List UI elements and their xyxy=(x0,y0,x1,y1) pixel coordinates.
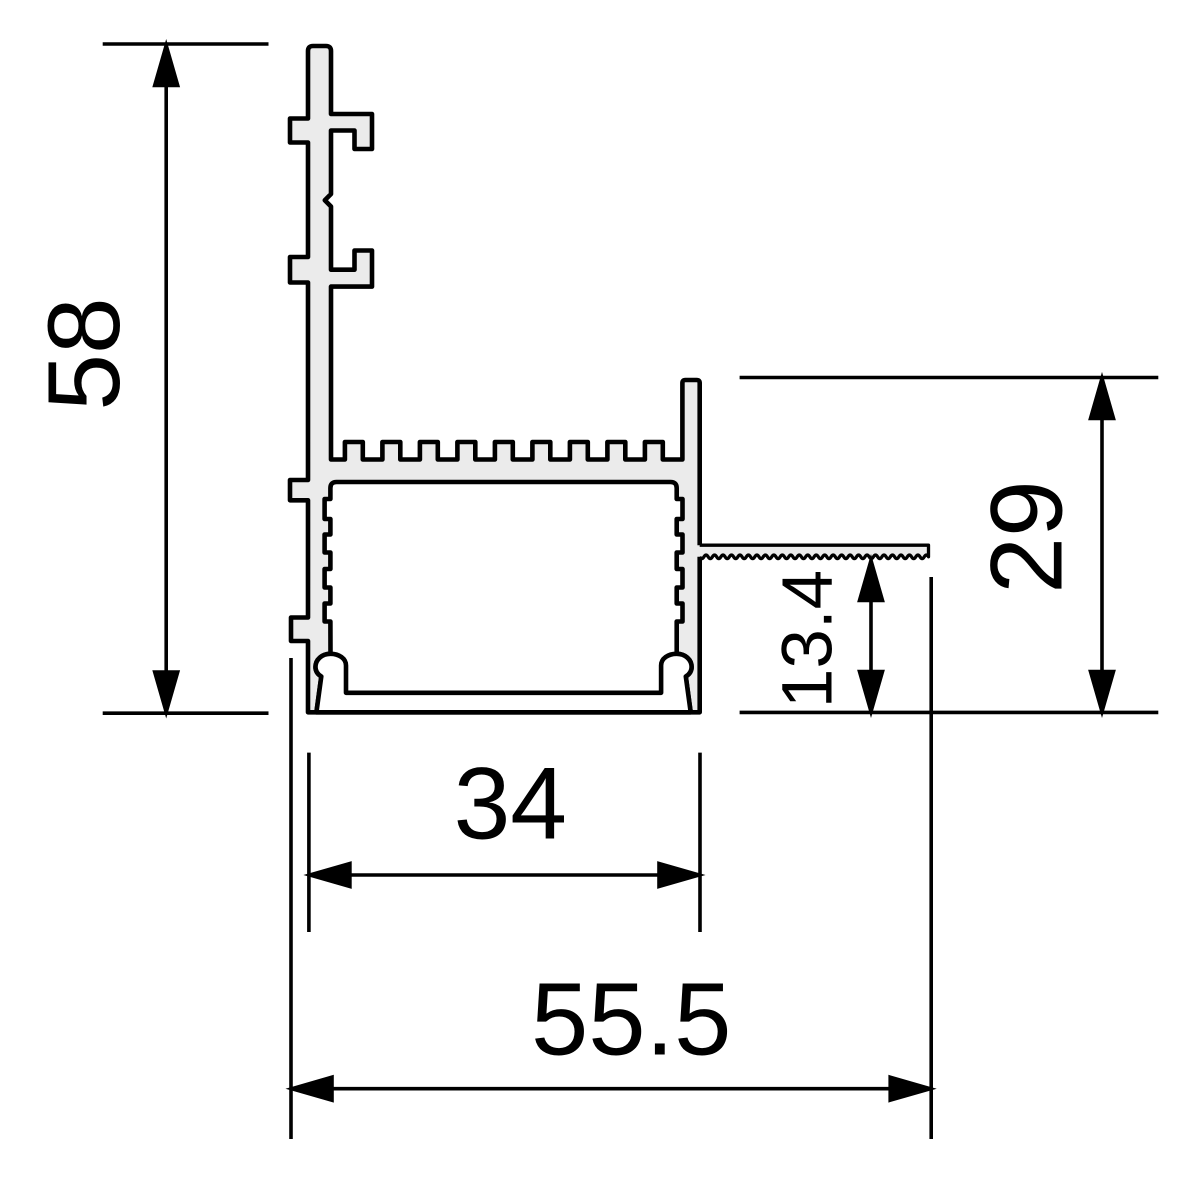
svg-text:34: 34 xyxy=(454,747,567,861)
svg-text:13.4: 13.4 xyxy=(769,570,848,708)
svg-text:29: 29 xyxy=(970,480,1084,593)
svg-text:58: 58 xyxy=(27,297,141,410)
svg-text:55.5: 55.5 xyxy=(531,962,731,1077)
